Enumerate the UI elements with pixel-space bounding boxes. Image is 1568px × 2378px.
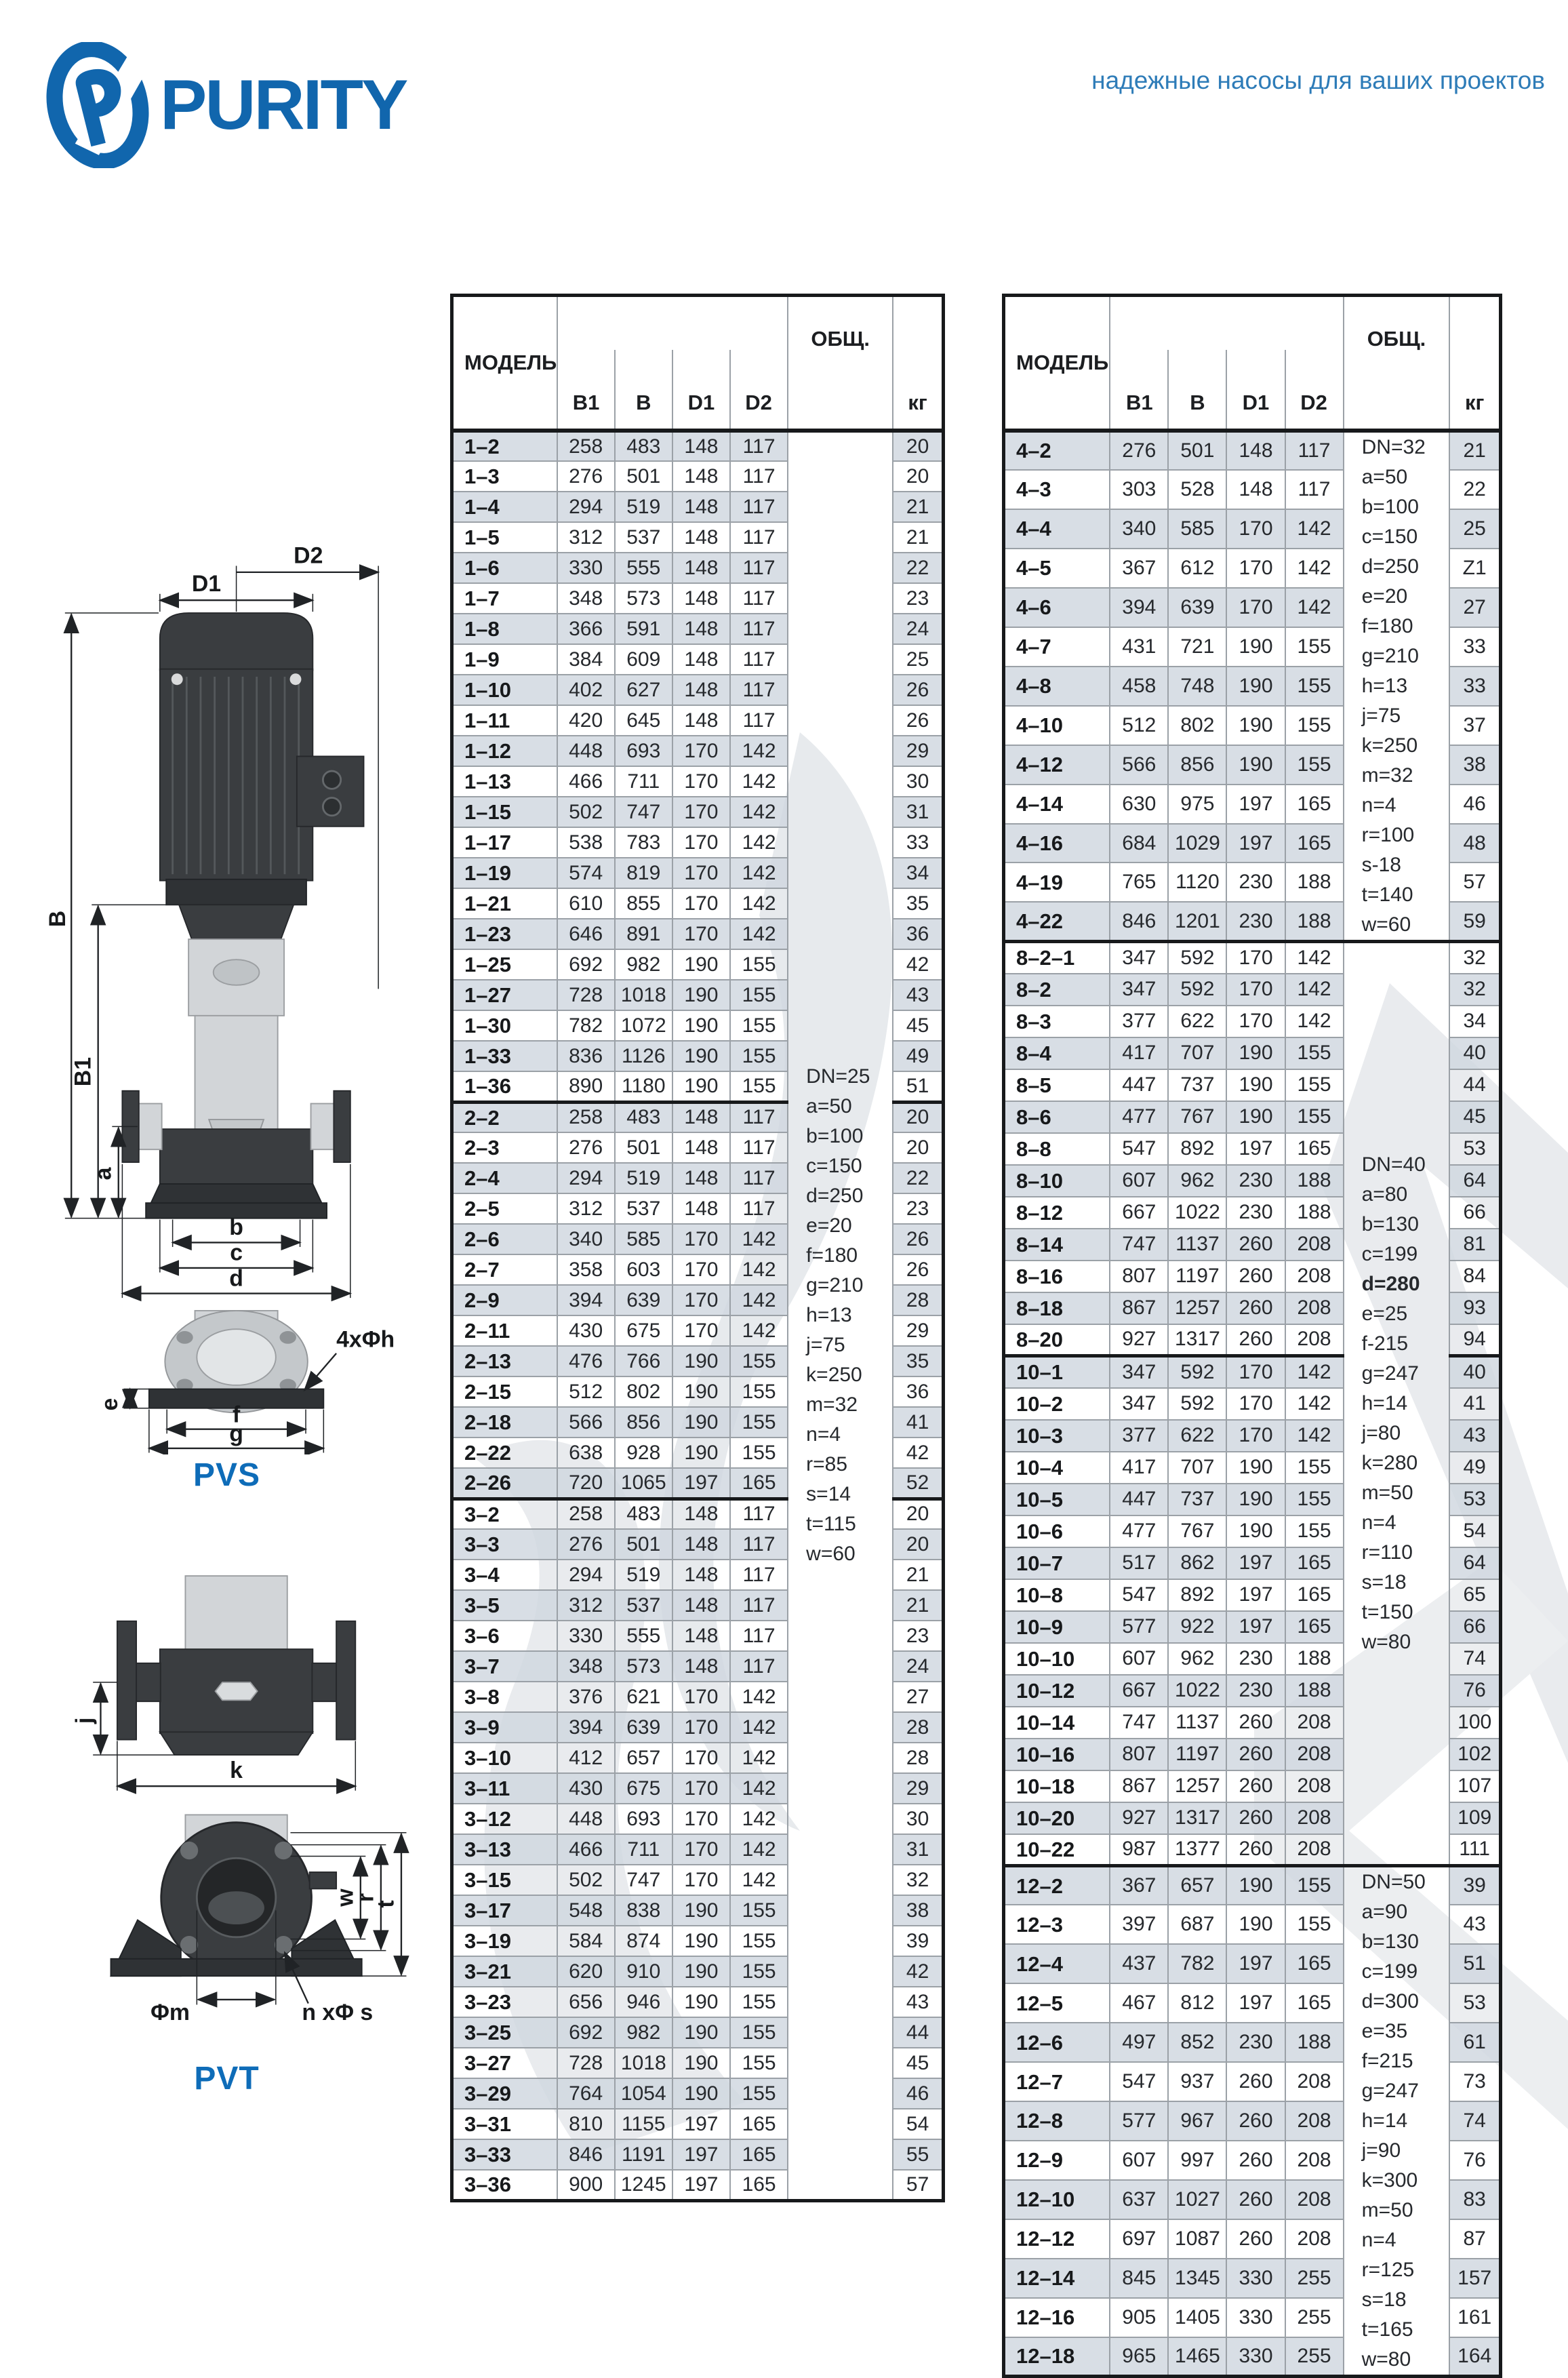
d1-cell: 170 bbox=[1226, 1006, 1285, 1037]
b1-cell: 927 bbox=[1110, 1324, 1168, 1356]
b-cell: 483 bbox=[615, 1499, 672, 1529]
b1-cell: 394 bbox=[557, 1712, 615, 1743]
b1-cell: 747 bbox=[1110, 1229, 1168, 1261]
b-cell: 573 bbox=[615, 583, 672, 614]
pvt-bolt-callout: n xΦ s bbox=[302, 2000, 373, 2025]
d2-cell: 165 bbox=[1285, 1983, 1344, 2023]
model-cell: 3–11 bbox=[452, 1773, 557, 1804]
kg-cell: 24 bbox=[893, 614, 943, 644]
d1-cell: 190 bbox=[672, 2017, 730, 2048]
model-cell: 4–16 bbox=[1004, 824, 1110, 863]
b1-cell: 348 bbox=[557, 1651, 615, 1682]
b-cell: 612 bbox=[1168, 549, 1226, 588]
pvs-dim-d2: D2 bbox=[294, 543, 323, 569]
model-cell: 1–17 bbox=[452, 827, 557, 858]
kg-cell: 22 bbox=[893, 1163, 943, 1193]
pvt-dim-t: t bbox=[374, 1900, 399, 1907]
d2-cell: 165 bbox=[730, 2170, 788, 2200]
d1-cell: 190 bbox=[1226, 745, 1285, 785]
kg-cell: 83 bbox=[1449, 2180, 1500, 2219]
b-cell: 1022 bbox=[1168, 1675, 1226, 1707]
b-cell: 707 bbox=[1168, 1452, 1226, 1484]
pvs-figure-label: PVS bbox=[42, 1456, 411, 1494]
b-cell: 812 bbox=[1168, 1983, 1226, 2023]
kg-cell: 42 bbox=[893, 1956, 943, 1987]
header-model: МОДЕЛЬ bbox=[1004, 296, 1110, 431]
b-cell: 555 bbox=[615, 553, 672, 583]
d2-cell: 155 bbox=[1285, 1866, 1344, 1905]
header-d1: D1 bbox=[1226, 296, 1285, 431]
b1-cell: 437 bbox=[1110, 1944, 1168, 1983]
kg-cell: 37 bbox=[1449, 706, 1500, 745]
model-cell: 2–9 bbox=[452, 1285, 557, 1315]
d1-cell: 190 bbox=[1226, 667, 1285, 706]
model-cell: 4–19 bbox=[1004, 863, 1110, 902]
b-cell: 483 bbox=[615, 1102, 672, 1132]
kg-cell: 30 bbox=[893, 766, 943, 797]
model-cell: 8–18 bbox=[1004, 1292, 1110, 1324]
b-cell: 856 bbox=[1168, 745, 1226, 785]
b1-cell: 312 bbox=[557, 1590, 615, 1621]
d2-cell: 142 bbox=[1285, 942, 1344, 974]
pvs-dim-b: b bbox=[229, 1214, 243, 1240]
kg-cell: 34 bbox=[893, 858, 943, 888]
kg-cell: 45 bbox=[893, 1010, 943, 1041]
pvs-dim-a: a bbox=[90, 1166, 116, 1180]
kg-cell: 26 bbox=[893, 1224, 943, 1254]
model-cell: 10–20 bbox=[1004, 1802, 1110, 1834]
d2-cell: 165 bbox=[1285, 1547, 1344, 1579]
d2-cell: 165 bbox=[730, 1468, 788, 1499]
b-cell: 1191 bbox=[615, 2139, 672, 2170]
b-cell: 639 bbox=[1168, 588, 1226, 627]
d1-cell: 260 bbox=[1226, 2062, 1285, 2101]
b-cell: 922 bbox=[1168, 1611, 1226, 1643]
note-line: w=80 bbox=[1362, 1627, 1449, 1657]
b1-cell: 466 bbox=[557, 1834, 615, 1865]
d1-cell: 190 bbox=[1226, 706, 1285, 745]
model-cell: 3–2 bbox=[452, 1499, 557, 1529]
d1-cell: 190 bbox=[672, 1071, 730, 1102]
model-cell: 8–12 bbox=[1004, 1197, 1110, 1229]
b1-cell: 340 bbox=[557, 1224, 615, 1254]
d2-cell: 142 bbox=[730, 736, 788, 766]
kg-cell: 94 bbox=[1449, 1324, 1500, 1356]
d2-cell: 142 bbox=[730, 1865, 788, 1895]
d2-cell: 155 bbox=[1285, 706, 1344, 745]
model-cell: 3–4 bbox=[452, 1560, 557, 1590]
note-line: j=75 bbox=[1362, 701, 1449, 731]
b1-cell: 620 bbox=[557, 1956, 615, 1987]
model-cell: 10–14 bbox=[1004, 1707, 1110, 1739]
b1-cell: 502 bbox=[557, 1865, 615, 1895]
d2-cell: 208 bbox=[1285, 2141, 1344, 2180]
d1-cell: 190 bbox=[1226, 1037, 1285, 1069]
b1-cell: 294 bbox=[557, 1163, 615, 1193]
model-cell: 1–4 bbox=[452, 492, 557, 522]
d1-cell: 197 bbox=[1226, 1547, 1285, 1579]
model-cell: 12–18 bbox=[1004, 2337, 1110, 2377]
d2-cell: 117 bbox=[730, 1560, 788, 1590]
kg-cell: 46 bbox=[893, 2078, 943, 2109]
kg-cell: 57 bbox=[893, 2170, 943, 2200]
d2-cell: 155 bbox=[1285, 627, 1344, 667]
model-cell: 8–14 bbox=[1004, 1229, 1110, 1261]
b1-cell: 630 bbox=[1110, 785, 1168, 824]
model-cell: 4–4 bbox=[1004, 509, 1110, 549]
d2-cell: 188 bbox=[1285, 1165, 1344, 1197]
d1-cell: 170 bbox=[1226, 509, 1285, 549]
kg-cell: 81 bbox=[1449, 1229, 1500, 1261]
b-cell: 982 bbox=[615, 949, 672, 980]
d1-cell: 148 bbox=[672, 431, 730, 461]
model-cell: 12–9 bbox=[1004, 2141, 1110, 2180]
d2-cell: 155 bbox=[1285, 1037, 1344, 1069]
note-line: m=50 bbox=[1362, 2196, 1449, 2225]
kg-cell: 102 bbox=[1449, 1739, 1500, 1770]
d2-cell: 188 bbox=[1285, 1197, 1344, 1229]
b-cell: 874 bbox=[615, 1926, 672, 1956]
kg-cell: 41 bbox=[1449, 1388, 1500, 1420]
d2-cell: 117 bbox=[730, 1621, 788, 1651]
b-cell: 862 bbox=[1168, 1547, 1226, 1579]
pvs-dim-e: e bbox=[97, 1398, 123, 1411]
kg-cell: 21 bbox=[893, 1560, 943, 1590]
model-cell: 1–8 bbox=[452, 614, 557, 644]
d2-cell: 142 bbox=[1285, 1006, 1344, 1037]
b-cell: 1345 bbox=[1168, 2259, 1226, 2298]
model-cell: 3–21 bbox=[452, 1956, 557, 1987]
d1-cell: 260 bbox=[1226, 2219, 1285, 2259]
model-cell: 2–11 bbox=[452, 1315, 557, 1346]
model-cell: 1–11 bbox=[452, 705, 557, 736]
kg-cell: Z1 bbox=[1449, 549, 1500, 588]
b1-cell: 720 bbox=[557, 1468, 615, 1499]
kg-cell: 31 bbox=[893, 797, 943, 827]
b-cell: 1317 bbox=[1168, 1802, 1226, 1834]
kg-cell: 73 bbox=[1449, 2062, 1500, 2101]
dimension-table-right: МОДЕЛЬ B1 B D1 D2 ОБЩ. кг 4–227650114811… bbox=[1002, 294, 1502, 2378]
kg-cell: 42 bbox=[893, 1438, 943, 1468]
header-kg: кг bbox=[893, 296, 943, 431]
note-line: e=20 bbox=[806, 1211, 892, 1241]
d2-cell: 117 bbox=[1285, 470, 1344, 509]
b-cell: 1029 bbox=[1168, 824, 1226, 863]
b-cell: 1257 bbox=[1168, 1770, 1226, 1802]
pvs-bottom-view: e f g 4xΦh bbox=[97, 1311, 395, 1453]
b-cell: 639 bbox=[615, 1285, 672, 1315]
table-row: 8–2–1347592170142DN=40a=80b=130c=199d=28… bbox=[1004, 942, 1501, 974]
model-cell: 1–9 bbox=[452, 644, 557, 675]
d1-cell: 148 bbox=[672, 705, 730, 736]
note-line: b=130 bbox=[1362, 1210, 1449, 1240]
b-cell: 891 bbox=[615, 919, 672, 949]
header-d2: D2 bbox=[1285, 296, 1344, 431]
d1-cell: 230 bbox=[1226, 1675, 1285, 1707]
d1-cell: 148 bbox=[1226, 431, 1285, 470]
model-cell: 4–6 bbox=[1004, 588, 1110, 627]
model-cell: 2–15 bbox=[452, 1376, 557, 1407]
d1-cell: 190 bbox=[672, 1376, 730, 1407]
d2-cell: 155 bbox=[730, 980, 788, 1010]
kg-cell: 20 bbox=[893, 1529, 943, 1560]
d1-cell: 148 bbox=[672, 583, 730, 614]
b-cell: 766 bbox=[615, 1346, 672, 1376]
d1-cell: 170 bbox=[672, 1224, 730, 1254]
d1-cell: 190 bbox=[672, 1956, 730, 1987]
kg-cell: 157 bbox=[1449, 2259, 1500, 2298]
d2-cell: 208 bbox=[1285, 2062, 1344, 2101]
b1-cell: 397 bbox=[1110, 1905, 1168, 1944]
note-line: e=20 bbox=[1362, 582, 1449, 612]
kg-cell: 45 bbox=[1449, 1101, 1500, 1133]
model-cell: 4–7 bbox=[1004, 627, 1110, 667]
b-cell: 711 bbox=[615, 766, 672, 797]
kg-cell: 87 bbox=[1449, 2219, 1500, 2259]
b-cell: 819 bbox=[615, 858, 672, 888]
d1-cell: 190 bbox=[672, 1346, 730, 1376]
d2-cell: 155 bbox=[1285, 1515, 1344, 1547]
d1-cell: 170 bbox=[1226, 1420, 1285, 1452]
d1-cell: 260 bbox=[1226, 1707, 1285, 1739]
pvs-dimension-diagram: D1 D2 B B1 a b c d e bbox=[42, 542, 411, 1454]
b1-cell: 330 bbox=[557, 1621, 615, 1651]
b1-cell: 497 bbox=[1110, 2023, 1168, 2062]
pvs-dim-g: g bbox=[229, 1421, 243, 1447]
model-cell: 10–16 bbox=[1004, 1739, 1110, 1770]
d2-cell: 117 bbox=[730, 1590, 788, 1621]
kg-cell: 93 bbox=[1449, 1292, 1500, 1324]
kg-cell: 107 bbox=[1449, 1770, 1500, 1802]
note-line: r=110 bbox=[1362, 1538, 1449, 1568]
d2-cell: 155 bbox=[730, 1438, 788, 1468]
d2-cell: 155 bbox=[1285, 1101, 1344, 1133]
b1-cell: 638 bbox=[557, 1438, 615, 1468]
kg-cell: 35 bbox=[893, 1346, 943, 1376]
pvs-dim-B1: B1 bbox=[70, 1057, 96, 1086]
note-line: b=130 bbox=[1362, 1927, 1449, 1957]
d1-cell: 170 bbox=[672, 1865, 730, 1895]
d2-cell: 155 bbox=[730, 1895, 788, 1926]
d1-cell: 197 bbox=[672, 2170, 730, 2200]
d2-cell: 142 bbox=[730, 1804, 788, 1834]
d2-cell: 142 bbox=[730, 1712, 788, 1743]
note-line: d=250 bbox=[806, 1181, 892, 1211]
b1-cell: 347 bbox=[1110, 1388, 1168, 1420]
b1-cell: 547 bbox=[1110, 1579, 1168, 1611]
d1-cell: 170 bbox=[672, 1743, 730, 1773]
d1-cell: 170 bbox=[672, 1834, 730, 1865]
kg-cell: 30 bbox=[893, 1804, 943, 1834]
b1-cell: 987 bbox=[1110, 1834, 1168, 1866]
model-cell: 8–10 bbox=[1004, 1165, 1110, 1197]
b1-cell: 577 bbox=[1110, 2101, 1168, 2141]
note-line: c=199 bbox=[1362, 1240, 1449, 1269]
d2-cell: 155 bbox=[730, 1956, 788, 1987]
model-cell: 3–7 bbox=[452, 1651, 557, 1682]
b1-cell: 547 bbox=[1110, 2062, 1168, 2101]
d1-cell: 170 bbox=[672, 1682, 730, 1712]
b-cell: 501 bbox=[1168, 431, 1226, 470]
kg-cell: 29 bbox=[893, 1773, 943, 1804]
note-line: g=247 bbox=[1362, 2076, 1449, 2106]
d1-cell: 148 bbox=[672, 1560, 730, 1590]
d2-cell: 142 bbox=[730, 1254, 788, 1285]
kg-cell: 29 bbox=[893, 1315, 943, 1346]
b-cell: 1072 bbox=[615, 1010, 672, 1041]
d2-cell: 117 bbox=[1285, 431, 1344, 470]
b1-cell: 312 bbox=[557, 1193, 615, 1224]
b1-cell: 367 bbox=[1110, 549, 1168, 588]
header-kg: кг bbox=[1449, 296, 1500, 431]
b1-cell: 667 bbox=[1110, 1197, 1168, 1229]
model-cell: 8–16 bbox=[1004, 1261, 1110, 1292]
kg-cell: 45 bbox=[893, 2048, 943, 2078]
b-cell: 767 bbox=[1168, 1101, 1226, 1133]
d2-cell: 208 bbox=[1285, 1324, 1344, 1356]
d1-cell: 190 bbox=[1226, 1069, 1285, 1101]
b1-cell: 402 bbox=[557, 675, 615, 705]
b1-cell: 548 bbox=[557, 1895, 615, 1926]
kg-cell: 76 bbox=[1449, 2141, 1500, 2180]
header-b1: B1 bbox=[557, 296, 615, 431]
note-line: n=4 bbox=[1362, 1508, 1449, 1538]
model-cell: 1–21 bbox=[452, 888, 557, 919]
b1-cell: 607 bbox=[1110, 2141, 1168, 2180]
kg-cell: 164 bbox=[1449, 2337, 1500, 2377]
kg-cell: 53 bbox=[1449, 1133, 1500, 1165]
b1-cell: 477 bbox=[1110, 1101, 1168, 1133]
b-cell: 1120 bbox=[1168, 863, 1226, 902]
pvs-dim-d1: D1 bbox=[192, 571, 221, 597]
model-cell: 10–10 bbox=[1004, 1643, 1110, 1675]
model-cell: 12–10 bbox=[1004, 2180, 1110, 2219]
d1-cell: 197 bbox=[672, 2109, 730, 2139]
model-cell: 2–18 bbox=[452, 1407, 557, 1438]
b-cell: 962 bbox=[1168, 1165, 1226, 1197]
model-cell: 3–29 bbox=[452, 2078, 557, 2109]
model-cell: 1–10 bbox=[452, 675, 557, 705]
kg-cell: 21 bbox=[893, 1590, 943, 1621]
d2-cell: 155 bbox=[730, 1987, 788, 2017]
model-cell: 3–36 bbox=[452, 2170, 557, 2200]
b1-cell: 692 bbox=[557, 949, 615, 980]
b-cell: 1137 bbox=[1168, 1229, 1226, 1261]
b-cell: 1201 bbox=[1168, 902, 1226, 941]
model-cell: 4–5 bbox=[1004, 549, 1110, 588]
kg-cell: 31 bbox=[893, 1834, 943, 1865]
d2-cell: 155 bbox=[730, 1926, 788, 1956]
d2-cell: 165 bbox=[730, 2109, 788, 2139]
model-cell: 12–8 bbox=[1004, 2101, 1110, 2141]
b1-cell: 477 bbox=[1110, 1515, 1168, 1547]
model-cell: 2–26 bbox=[452, 1468, 557, 1499]
b1-cell: 458 bbox=[1110, 667, 1168, 706]
kg-cell: 43 bbox=[893, 1987, 943, 2017]
d1-cell: 170 bbox=[672, 1254, 730, 1285]
b-cell: 962 bbox=[1168, 1643, 1226, 1675]
d1-cell: 148 bbox=[672, 553, 730, 583]
b1-cell: 728 bbox=[557, 980, 615, 1010]
d1-cell: 148 bbox=[672, 614, 730, 644]
b-cell: 657 bbox=[1168, 1866, 1226, 1905]
b1-cell: 366 bbox=[557, 614, 615, 644]
model-cell: 4–2 bbox=[1004, 431, 1110, 470]
d1-cell: 260 bbox=[1226, 1739, 1285, 1770]
d2-cell: 142 bbox=[730, 1315, 788, 1346]
b1-cell: 846 bbox=[1110, 902, 1168, 941]
note-line: n=4 bbox=[1362, 2225, 1449, 2255]
d1-cell: 148 bbox=[672, 1651, 730, 1682]
model-cell: 4–10 bbox=[1004, 706, 1110, 745]
model-cell: 10–3 bbox=[1004, 1420, 1110, 1452]
kg-cell: 20 bbox=[893, 1499, 943, 1529]
b1-cell: 765 bbox=[1110, 863, 1168, 902]
b-cell: 802 bbox=[615, 1376, 672, 1407]
model-cell: 4–22 bbox=[1004, 902, 1110, 941]
b-cell: 748 bbox=[1168, 667, 1226, 706]
b1-cell: 276 bbox=[1110, 431, 1168, 470]
b-cell: 555 bbox=[615, 1621, 672, 1651]
kg-cell: 40 bbox=[1449, 1356, 1500, 1388]
pvt-dim-m: Φm bbox=[150, 2000, 190, 2025]
kg-cell: 52 bbox=[893, 1468, 943, 1499]
d1-cell: 190 bbox=[672, 1438, 730, 1468]
d2-cell: 165 bbox=[1285, 824, 1344, 863]
kg-cell: 20 bbox=[893, 431, 943, 461]
header-b: B bbox=[615, 296, 672, 431]
d1-cell: 148 bbox=[672, 1499, 730, 1529]
b-cell: 1137 bbox=[1168, 1707, 1226, 1739]
header-total: ОБЩ. bbox=[788, 296, 893, 431]
b1-cell: 347 bbox=[1110, 974, 1168, 1006]
d1-cell: 170 bbox=[1226, 942, 1285, 974]
b1-cell: 566 bbox=[557, 1407, 615, 1438]
d2-cell: 142 bbox=[1285, 974, 1344, 1006]
b-cell: 1405 bbox=[1168, 2298, 1226, 2337]
d1-cell: 260 bbox=[1226, 2180, 1285, 2219]
kg-cell: 74 bbox=[1449, 2101, 1500, 2141]
d1-cell: 170 bbox=[672, 736, 730, 766]
b-cell: 767 bbox=[1168, 1515, 1226, 1547]
kg-cell: 59 bbox=[1449, 902, 1500, 941]
d1-cell: 197 bbox=[1226, 824, 1285, 863]
b1-cell: 330 bbox=[557, 553, 615, 583]
model-cell: 4–12 bbox=[1004, 745, 1110, 785]
b1-cell: 420 bbox=[557, 705, 615, 736]
b-cell: 519 bbox=[615, 492, 672, 522]
pvs-bolt-callout: 4xΦh bbox=[336, 1326, 395, 1352]
model-cell: 8–20 bbox=[1004, 1324, 1110, 1356]
d1-cell: 260 bbox=[1226, 1770, 1285, 1802]
d1-cell: 170 bbox=[672, 797, 730, 827]
d1-cell: 170 bbox=[672, 1712, 730, 1743]
d1-cell: 230 bbox=[1226, 1643, 1285, 1675]
d2-cell: 117 bbox=[730, 1499, 788, 1529]
b-cell: 910 bbox=[615, 1956, 672, 1987]
b1-cell: 846 bbox=[557, 2139, 615, 2170]
b1-cell: 607 bbox=[1110, 1643, 1168, 1675]
d2-cell: 117 bbox=[730, 1163, 788, 1193]
kg-cell: 49 bbox=[893, 1041, 943, 1071]
model-cell: 3–33 bbox=[452, 2139, 557, 2170]
b-cell: 1317 bbox=[1168, 1324, 1226, 1356]
note-line: f=180 bbox=[806, 1241, 892, 1271]
b1-cell: 466 bbox=[557, 766, 615, 797]
pvt-dim-k: k bbox=[230, 1758, 243, 1783]
d1-cell: 260 bbox=[1226, 2141, 1285, 2180]
model-cell: 10–2 bbox=[1004, 1388, 1110, 1420]
